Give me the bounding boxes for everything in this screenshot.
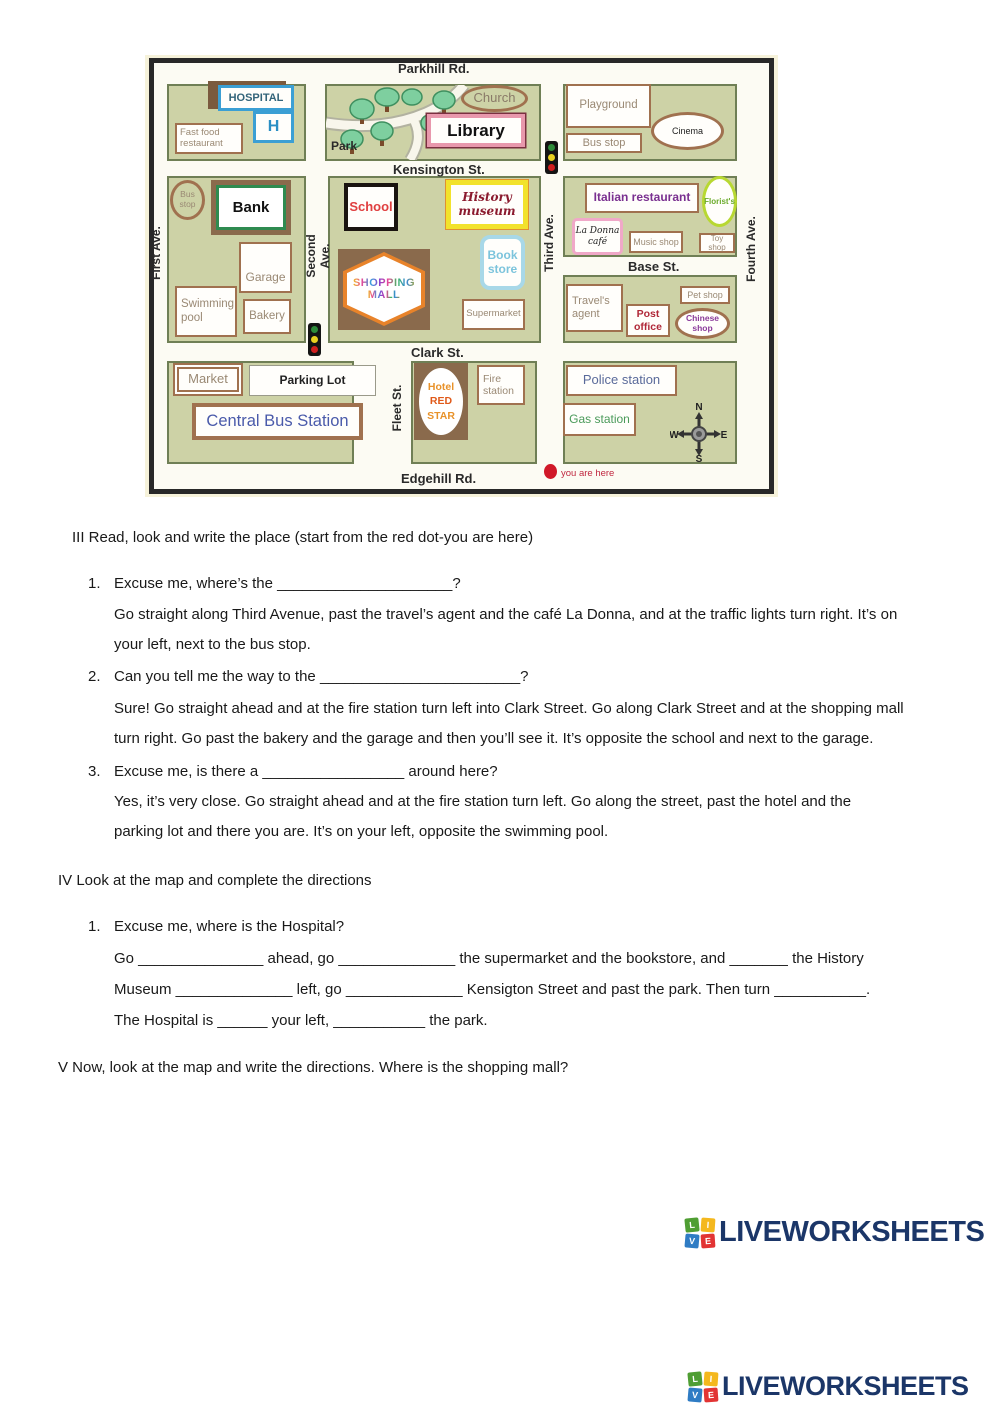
street-third-ave: Third Ave. [542,208,556,278]
police-station: Police station [566,365,677,396]
answer-2-line-2: turn right. Go past the bakery and the g… [114,730,873,747]
answer-1-line-1: Go straight along Third Avenue, past the… [114,606,897,623]
school: School [344,183,398,231]
compass-e: E [721,430,728,441]
iv-line-2: Museum ______________ left, go _________… [114,981,870,998]
item-number: 3. [88,763,101,780]
street-base: Base St. [628,259,679,274]
cinema: Cinema [651,112,724,150]
compass-s: S [696,454,703,463]
hospital-sign: HOSPITAL [218,85,294,111]
playground: Playground [566,84,651,128]
item-number: 1. [88,575,101,592]
street-fourth-ave: Fourth Ave. [744,214,758,284]
liveworksheets-wordmark: LIVEWORKSHEETS [719,1216,984,1249]
question-2: Can you tell me the way to the _________… [114,668,529,685]
chinese-shop: Chinese shop [675,308,730,339]
hotel-label-2: RED [430,394,452,408]
street-first-ave: First Ave. [149,218,163,288]
gas-station: Gas station [563,403,636,436]
traffic-light-kensington [545,141,558,174]
street-fleet: Fleet St. [390,373,404,443]
market: Market [173,363,243,396]
item-number: 1. [88,918,101,935]
bus-stop-northeast: Bus stop [566,133,642,153]
shopping-mall-label-1: SHOPPING [353,277,415,289]
toy-shop: Toy shop [699,233,735,253]
library: Library [427,114,525,147]
answer-2-line-1: Sure! Go straight ahead and at the fire … [114,700,904,717]
street-second-ave: Second Ave. [304,221,332,291]
bank-frame: Bank [211,180,291,235]
iv-line-1: Go _______________ ahead, go ___________… [114,950,864,967]
la-donna-cafe: La Donna café [572,218,623,255]
parking-lot: Parking Lot [249,365,376,396]
hospital-h-sign: H [253,111,294,143]
street-kensington: Kensington St. [393,162,485,177]
garage: Garage [239,242,292,293]
compass-w: W [670,430,679,441]
liveworksheets-tiles-icon: L I V E [688,1372,718,1402]
liveworksheets-wordmark: LIVEWORKSHEETS [722,1371,969,1402]
history-museum: History museum [446,180,528,229]
liveworksheets-logo-footer[interactable]: L I V E LIVEWORKSHEETS [688,1371,969,1402]
bakery: Bakery [243,299,291,334]
shopping-mall-label-2: MALL [368,289,401,301]
section-v-title: V Now, look at the map and write the dir… [58,1059,568,1076]
worksheet-page: Park Parkhill Rd. Kensington St. Base St… [0,0,1000,1414]
iv-question: Excuse me, where is the Hospital? [114,918,344,935]
pet-shop: Pet shop [680,286,730,304]
florists: Florist's [702,176,737,227]
section-iv-title: IV Look at the map and complete the dire… [58,872,372,889]
you-are-here-dot [544,464,557,479]
street-parkhill: Parkhill Rd. [398,61,470,76]
bus-stop-west: Bus stop [170,180,205,220]
bank: Bank [216,185,286,230]
park-label: Park [331,139,357,153]
town-map: Park Parkhill Rd. Kensington St. Base St… [145,55,778,497]
section-iii-title: III Read, look and write the place (star… [72,529,533,546]
book-store: Book store [480,235,525,290]
shopping-mall-hex: SHOPPING MALL [343,252,425,326]
iv-line-3: The Hospital is ______ your left, ______… [114,1012,488,1029]
travels-agent: Travel's agent [566,284,623,332]
answer-3-line-2: parking lot and there you are. It’s on y… [114,823,608,840]
italian-restaurant: Italian restaurant [585,183,699,213]
post-office: Post office [626,304,670,337]
hotel-label-1: Hotel [428,380,454,394]
shopping-mall: SHOPPING MALL [338,249,430,330]
hotel-label-3: STAR [427,409,455,423]
you-are-here-label: you are here [561,468,614,479]
music-shop: Music shop [629,231,683,253]
liveworksheets-tiles-icon: L I V E [685,1218,715,1248]
liveworksheets-logo[interactable]: L I V E LIVEWORKSHEETS [685,1216,984,1249]
item-number: 2. [88,668,101,685]
compass-rose: N S W E [670,401,728,463]
compass-n: N [695,402,702,413]
answer-3-line-1: Yes, it’s very close. Go straight ahead … [114,793,851,810]
street-edgehill: Edgehill Rd. [401,471,476,486]
central-bus-station: Central Bus Station [192,403,363,440]
supermarket: Supermarket [462,299,525,330]
swimming-pool: Swimming pool [175,286,237,337]
question-3: Excuse me, is there a _________________ … [114,763,498,780]
traffic-light-clark [308,323,321,356]
church: Church [461,85,528,112]
fast-food-restaurant: Fast food restaurant [175,123,243,154]
hotel-red-star: Hotel RED STAR [414,363,468,440]
answer-1-line-2: your left, next to the bus stop. [114,636,311,653]
street-clark: Clark St. [411,345,464,360]
question-1: Excuse me, where’s the _________________… [114,575,461,592]
fire-station: Fire station [477,365,525,405]
